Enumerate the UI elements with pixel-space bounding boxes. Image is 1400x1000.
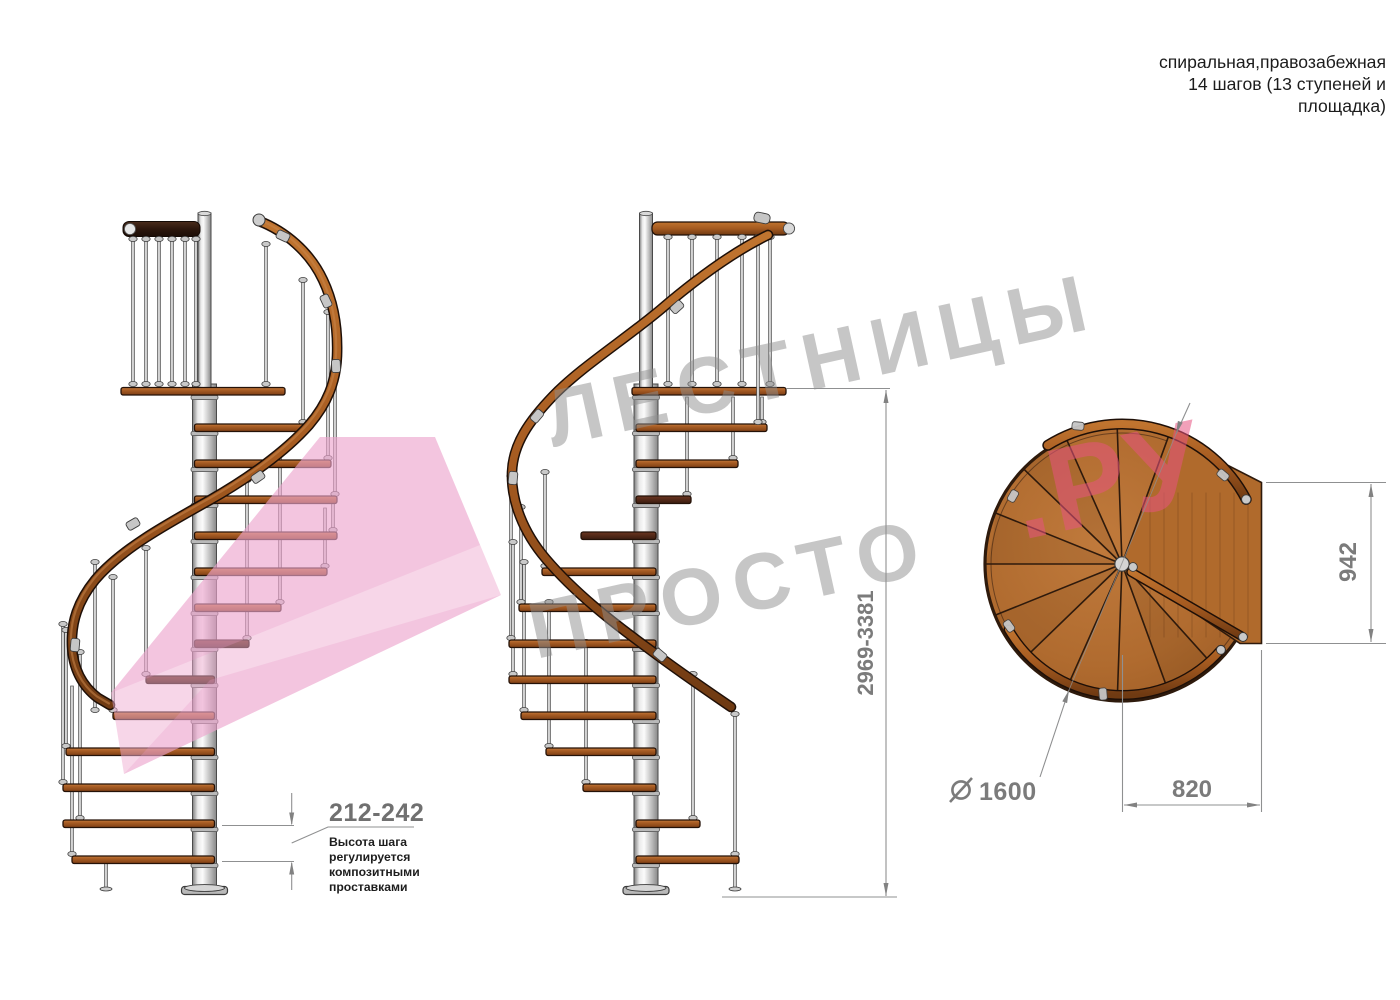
svg-text:2969-3381: 2969-3381 (853, 590, 878, 695)
svg-text:регулируется: регулируется (329, 850, 410, 864)
svg-text:Высота шага: Высота шага (329, 835, 407, 849)
svg-text:площадка): площадка) (1298, 96, 1386, 116)
svg-text:проставками: проставками (329, 880, 408, 894)
svg-text:820: 820 (1172, 776, 1212, 803)
svg-text:композитными: композитными (329, 865, 420, 879)
svg-text:942: 942 (1335, 542, 1362, 582)
svg-text:спиральная,правозабежная: спиральная,правозабежная (1159, 52, 1386, 72)
svg-text:14 шагов (13 ступеней и: 14 шагов (13 ступеней и (1188, 74, 1386, 94)
svg-text:1600: 1600 (979, 778, 1037, 806)
svg-text:212-242: 212-242 (329, 799, 424, 827)
